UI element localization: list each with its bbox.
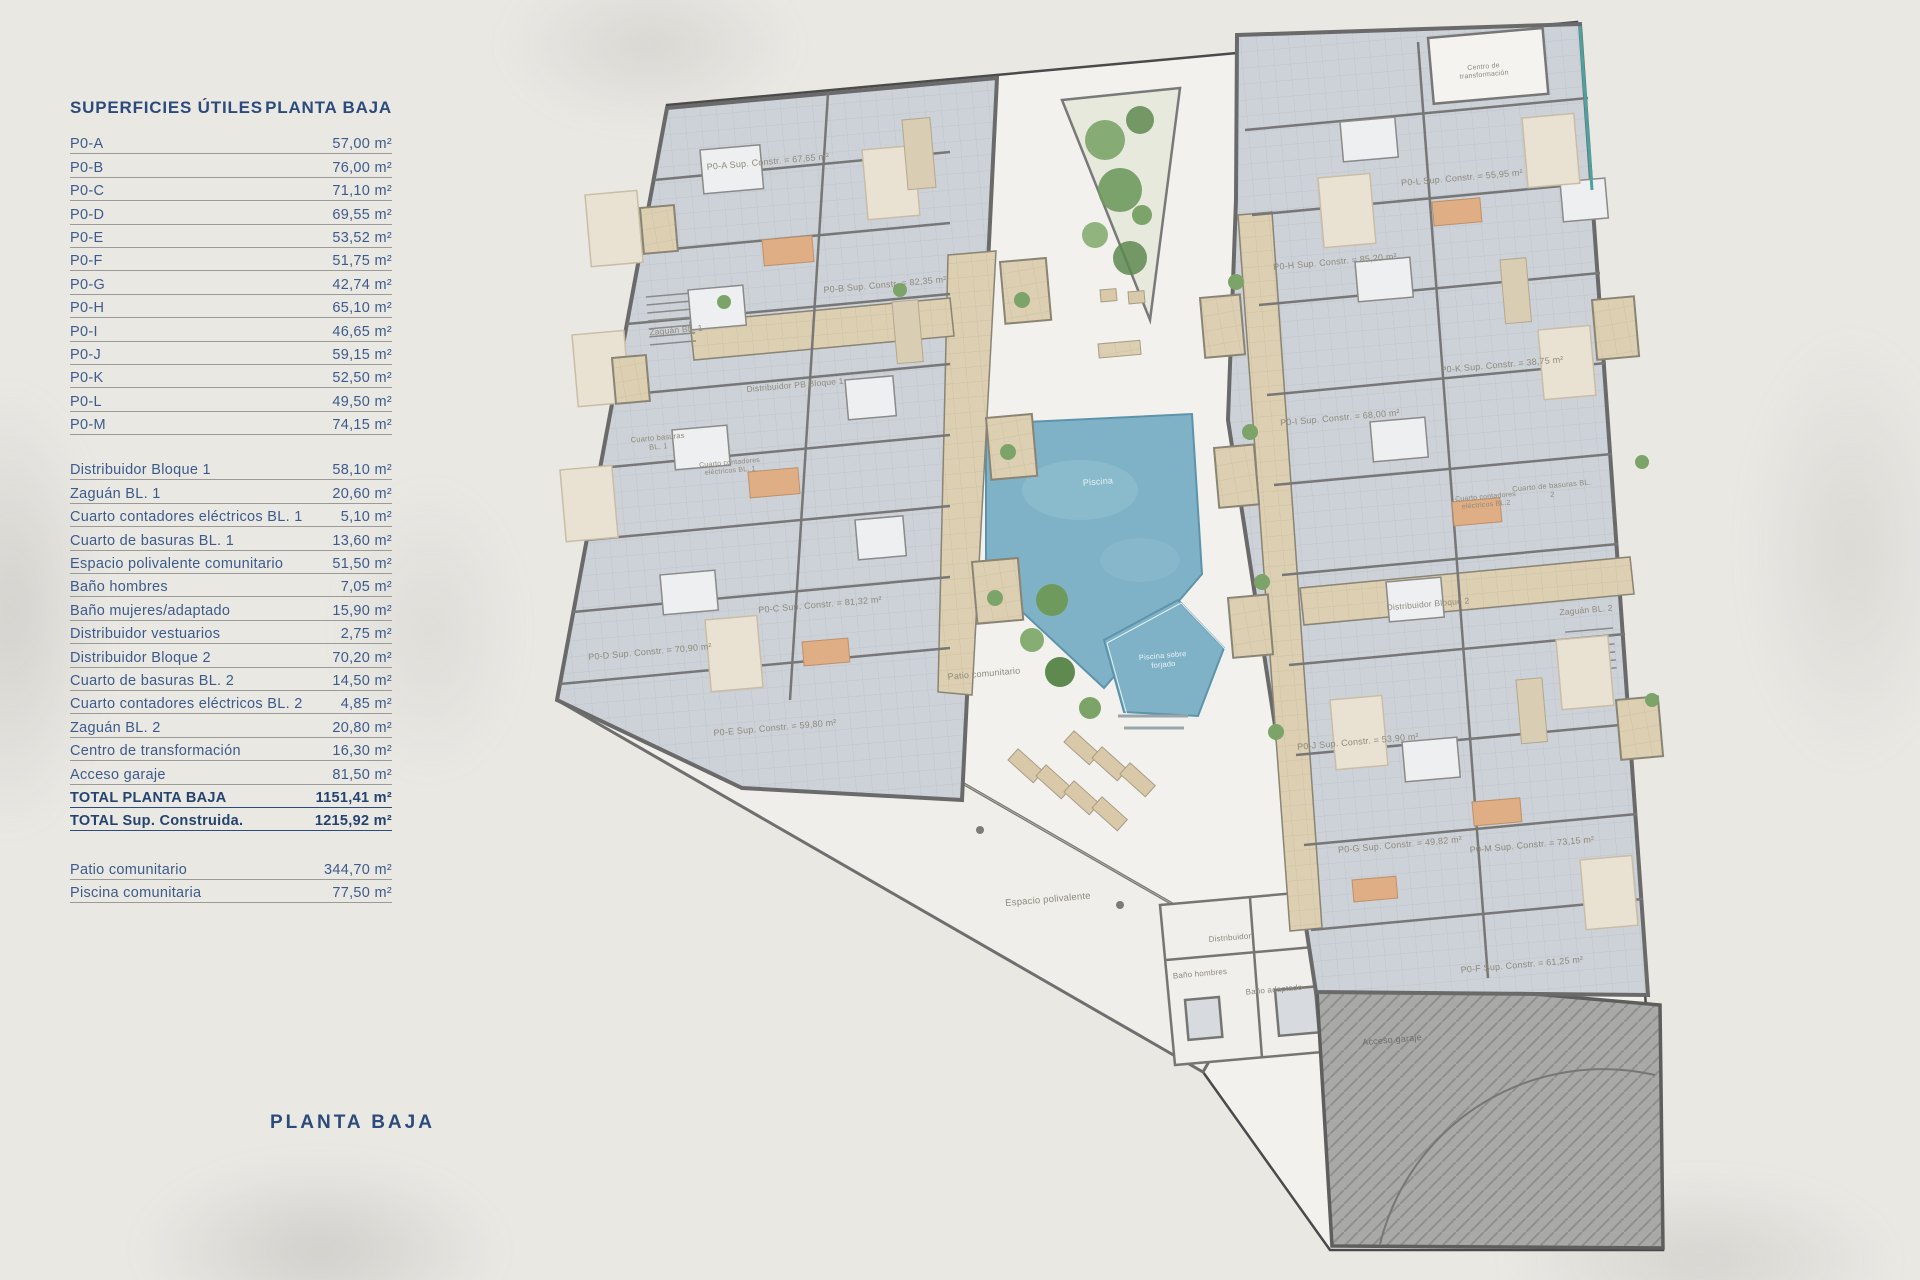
page: P0-A Sup. Constr. = 67,65 m²P0-B Sup. Co… (0, 0, 1920, 1280)
row-label: Acceso garaje (70, 767, 166, 783)
row-value: 57,00 m² (332, 136, 392, 152)
row-value: 42,74 m² (332, 277, 392, 293)
units-section: P0-A57,00 m²P0-B76,00 m²P0-C71,10 m²P0-D… (70, 131, 392, 435)
table-row: P0-K52,50 m² (70, 365, 392, 388)
row-label: P0-G (70, 277, 105, 293)
table-row: Acceso garaje81,50 m² (70, 761, 392, 784)
totals-section: TOTAL PLANTA BAJA1151,41 m²TOTAL Sup. Co… (70, 785, 392, 832)
table-row: Zaguán BL. 220,80 m² (70, 714, 392, 737)
row-label: Zaguán BL. 1 (70, 486, 161, 502)
row-value: 46,65 m² (332, 324, 392, 340)
table-row: Centro de transformación16,30 m² (70, 738, 392, 761)
row-value: 7,05 m² (341, 579, 392, 595)
row-value: 20,80 m² (332, 720, 392, 736)
row-label: Distribuidor Bloque 2 (70, 650, 211, 666)
row-value: 69,55 m² (332, 207, 392, 223)
row-value: 13,60 m² (332, 533, 392, 549)
row-label: Patio comunitario (70, 862, 187, 878)
row-value: 76,00 m² (332, 160, 392, 176)
row-value: 74,15 m² (332, 417, 392, 433)
table-row: P0-A57,00 m² (70, 131, 392, 154)
table-row: Distribuidor Bloque 270,20 m² (70, 644, 392, 667)
row-value: 70,20 m² (332, 650, 392, 666)
row-label: P0-A (70, 136, 103, 152)
row-label: P0-J (70, 347, 101, 363)
row-label: Cuarto de basuras BL. 2 (70, 673, 234, 689)
table-row: Baño mujeres/adaptado15,90 m² (70, 597, 392, 620)
table-title: SUPERFICIES ÚTILES (70, 98, 263, 118)
table-row: Cuarto contadores eléctricos BL. 24,85 m… (70, 691, 392, 714)
table-row: P0-L49,50 m² (70, 388, 392, 411)
row-value: 51,50 m² (332, 556, 392, 572)
row-value: 2,75 m² (341, 626, 392, 642)
row-label: Zaguán BL. 2 (70, 720, 161, 736)
table-row: Espacio polivalente comunitario51,50 m² (70, 551, 392, 574)
row-value: 49,50 m² (332, 394, 392, 410)
table-row: Patio comunitario344,70 m² (70, 856, 392, 879)
row-value: 81,50 m² (332, 767, 392, 783)
row-value: 77,50 m² (332, 885, 392, 901)
row-label: P0-C (70, 183, 104, 199)
table-row: Cuarto contadores eléctricos BL. 15,10 m… (70, 504, 392, 527)
row-value: 53,52 m² (332, 230, 392, 246)
row-value: 4,85 m² (341, 696, 392, 712)
row-value: 52,50 m² (332, 370, 392, 386)
table-row: Zaguán BL. 120,60 m² (70, 480, 392, 503)
row-value: 344,70 m² (324, 862, 392, 878)
table-row: P0-C71,10 m² (70, 178, 392, 201)
table-row: P0-G42,74 m² (70, 271, 392, 294)
surface-table: SUPERFICIES ÚTILES PLANTA BAJA P0-A57,00… (70, 98, 392, 903)
table-subtitle: PLANTA BAJA (265, 98, 392, 118)
table-row: Cuarto de basuras BL. 113,60 m² (70, 527, 392, 550)
table-row: Piscina comunitaria77,50 m² (70, 880, 392, 903)
row-value: 14,50 m² (332, 673, 392, 689)
table-row: P0-J59,15 m² (70, 342, 392, 365)
row-value: 65,10 m² (332, 300, 392, 316)
table-row: P0-I46,65 m² (70, 318, 392, 341)
outdoor-section: Patio comunitario344,70 m²Piscina comuni… (70, 856, 392, 903)
row-label: Baño hombres (70, 579, 168, 595)
row-label: P0-F (70, 253, 103, 269)
row-value: 20,60 m² (332, 486, 392, 502)
row-value: 71,10 m² (332, 183, 392, 199)
row-value: 5,10 m² (341, 509, 392, 525)
table-row: Distribuidor Bloque 158,10 m² (70, 457, 392, 480)
row-value: 1215,92 m² (315, 813, 392, 829)
table-row: P0-B76,00 m² (70, 154, 392, 177)
row-label: Piscina comunitaria (70, 885, 201, 901)
row-value: 15,90 m² (332, 603, 392, 619)
row-label: P0-E (70, 230, 103, 246)
row-label: P0-B (70, 160, 103, 176)
plan-title: PLANTA BAJA (270, 1112, 435, 1134)
table-row: P0-H65,10 m² (70, 295, 392, 318)
row-label: P0-H (70, 300, 104, 316)
row-label: P0-I (70, 324, 98, 340)
table-row: TOTAL Sup. Construida.1215,92 m² (70, 808, 392, 831)
row-label: Espacio polivalente comunitario (70, 556, 283, 572)
row-label: Cuarto contadores eléctricos BL. 1 (70, 509, 303, 525)
table-row: P0-F51,75 m² (70, 248, 392, 271)
row-label: TOTAL PLANTA BAJA (70, 790, 227, 806)
row-label: P0-M (70, 417, 106, 433)
row-label: TOTAL Sup. Construida. (70, 813, 243, 829)
row-label: Distribuidor Bloque 1 (70, 462, 211, 478)
table-row: P0-D69,55 m² (70, 201, 392, 224)
row-label: Centro de transformación (70, 743, 241, 759)
garage (1316, 975, 1663, 1248)
table-row: Cuarto de basuras BL. 214,50 m² (70, 668, 392, 691)
row-label: Cuarto contadores eléctricos BL. 2 (70, 696, 303, 712)
table-row: P0-M74,15 m² (70, 412, 392, 435)
table-header: SUPERFICIES ÚTILES PLANTA BAJA (70, 98, 392, 118)
row-value: 51,75 m² (332, 253, 392, 269)
row-label: P0-L (70, 394, 102, 410)
table-row: TOTAL PLANTA BAJA1151,41 m² (70, 785, 392, 808)
row-label: Baño mujeres/adaptado (70, 603, 230, 619)
table-row: Baño hombres7,05 m² (70, 574, 392, 597)
common-areas-section: Distribuidor Bloque 158,10 m²Zaguán BL. … (70, 457, 392, 784)
row-label: Cuarto de basuras BL. 1 (70, 533, 234, 549)
row-value: 59,15 m² (332, 347, 392, 363)
row-label: P0-D (70, 207, 104, 223)
row-value: 1151,41 m² (316, 790, 392, 806)
row-value: 16,30 m² (332, 743, 392, 759)
row-value: 58,10 m² (332, 462, 392, 478)
table-row: P0-E53,52 m² (70, 225, 392, 248)
row-label: Distribuidor vestuarios (70, 626, 220, 642)
table-row: Distribuidor vestuarios2,75 m² (70, 621, 392, 644)
row-label: P0-K (70, 370, 103, 386)
